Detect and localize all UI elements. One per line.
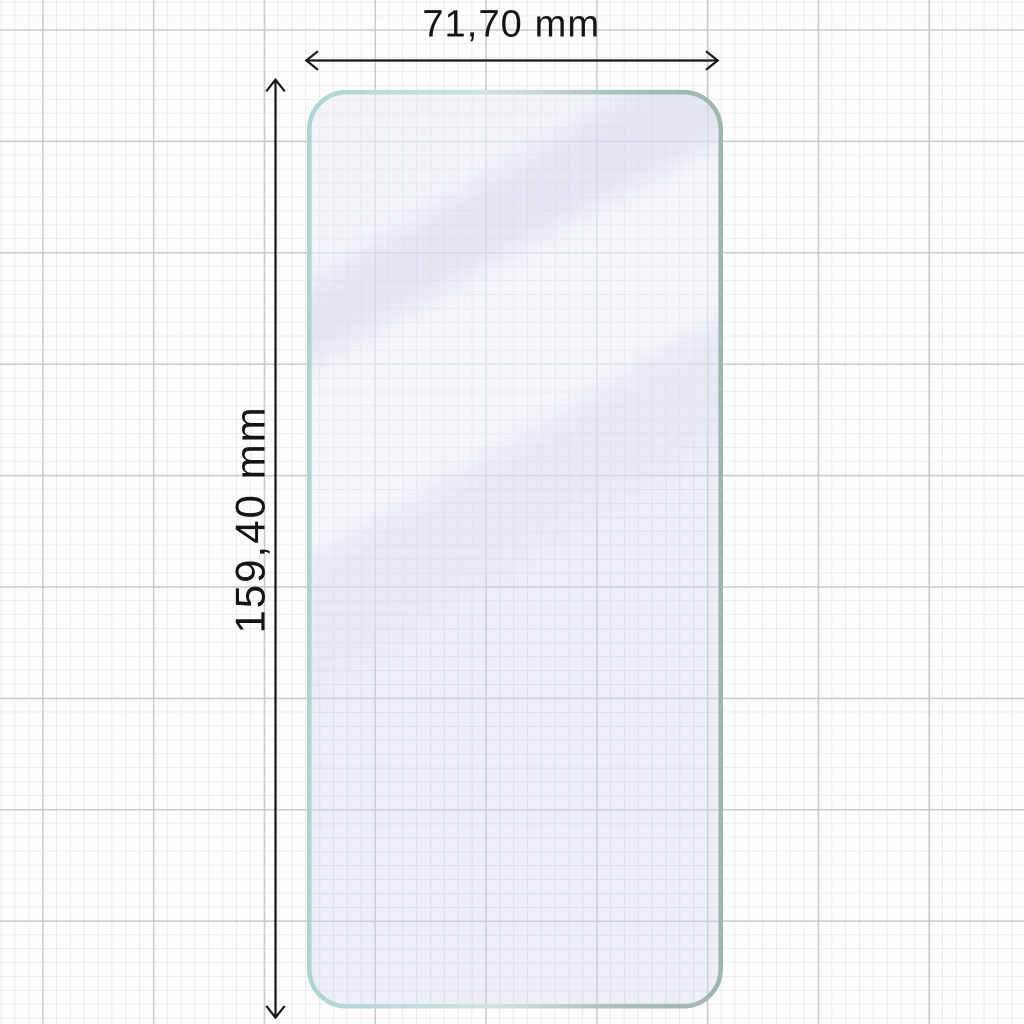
svg-text:159,40 mm: 159,40 mm: [227, 405, 274, 633]
svg-text:71,70 mm: 71,70 mm: [422, 4, 600, 46]
